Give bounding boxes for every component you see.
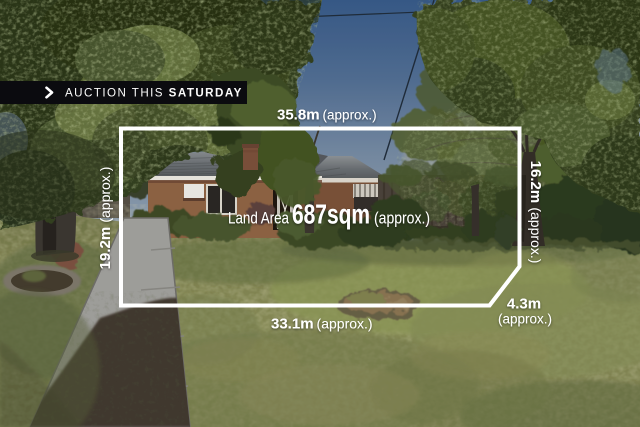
svg-text:AUCTION THIS SATURDAY: AUCTION THIS SATURDAY [65, 86, 243, 99]
svg-text:(approx.): (approx.) [374, 210, 430, 228]
svg-text:4.3m: 4.3m [507, 296, 541, 313]
svg-text:16.2m (approx.): 16.2m (approx.) [527, 161, 544, 264]
svg-text:687sqm: 687sqm [292, 199, 370, 230]
svg-text:35.8m(approx.): 35.8m(approx.) [277, 107, 377, 124]
svg-text:33.1m(approx.): 33.1m(approx.) [271, 316, 373, 333]
svg-text:19.2m (approx.): 19.2m (approx.) [97, 167, 114, 270]
svg-text:(approx.): (approx.) [498, 312, 552, 327]
svg-text:Land Area: Land Area [228, 210, 290, 228]
